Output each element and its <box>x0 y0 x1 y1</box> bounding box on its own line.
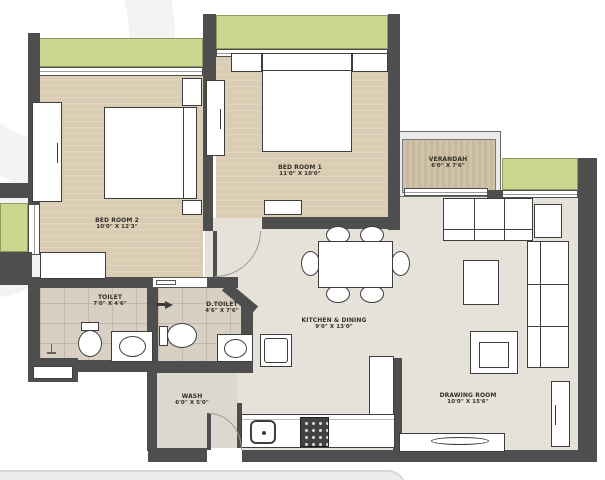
sliding-door <box>152 277 208 288</box>
shelf-icon <box>352 53 388 72</box>
entry-opening <box>207 448 242 464</box>
bench-icon <box>264 200 302 215</box>
tv-console-icon <box>551 381 570 447</box>
room-label-drawing: DRAWING ROOM 10'0" X 15'6" <box>440 392 497 406</box>
tall-unit-icon <box>369 356 394 416</box>
room-name: TOILET <box>93 294 127 301</box>
bedroom2-side-window <box>28 198 40 255</box>
room-dims: 6'0" X 5'0" <box>175 400 209 407</box>
verandah-sliding-window <box>404 188 488 196</box>
room-label-bedroom1: BED ROOM 1 11'0" X 10'0" <box>278 164 322 178</box>
room-label-dtoilet: D.TOILET 4'6" X 7'6" <box>205 301 239 315</box>
floor-plan: BED ROOM 2 10'0" X 12'3" BED ROOM 1 11'0… <box>0 0 605 480</box>
wall-post-mid <box>203 14 216 83</box>
wardrobe-icon <box>206 80 225 156</box>
washing-machine-icon <box>260 334 292 367</box>
wardrobe-icon <box>32 102 62 202</box>
living-window <box>502 190 578 198</box>
wall-right <box>578 158 597 462</box>
dining-chair-icon <box>391 251 410 276</box>
shelf-icon <box>231 53 262 72</box>
room-label-wash: WASH 6'0" X 5'0" <box>175 393 209 407</box>
bedroom2-window <box>39 67 203 76</box>
living-balcony-green <box>502 158 578 190</box>
room-label-bedroom2: BED ROOM 2 10'0" X 12'3" <box>95 217 139 231</box>
wall-bed1-right <box>388 83 400 230</box>
room-name: BED ROOM 2 <box>95 217 139 224</box>
wall-wash-left <box>147 362 157 451</box>
room-name: BED ROOM 1 <box>278 164 322 171</box>
side-table-icon <box>534 204 562 238</box>
wc-icon <box>159 321 201 351</box>
kitchen-sink-icon <box>250 420 276 444</box>
washbasin-icon <box>111 331 153 362</box>
wall-post-bed1-right <box>388 14 400 83</box>
hob-icon <box>300 417 329 447</box>
washbasin-icon <box>217 334 253 362</box>
wall-ledge-a <box>0 183 34 198</box>
bedroom1-balcony-green <box>216 15 388 49</box>
wc-icon <box>76 322 104 358</box>
dining-table-icon <box>318 241 393 288</box>
tv-icon <box>431 437 489 445</box>
room-dims: 10'0" X 12'3" <box>95 224 139 231</box>
room-name: D.TOILET <box>205 301 239 308</box>
room-dims: 4'6" X 7'6" <box>205 308 239 315</box>
room-dims: 10'0" X 15'6" <box>440 399 497 406</box>
room-name: DRAWING ROOM <box>440 392 497 399</box>
duct-box <box>33 366 73 379</box>
sofa-icon <box>527 241 569 368</box>
nightstand-icon <box>182 200 202 215</box>
room-dims: 9'0" X 13'0" <box>302 324 367 331</box>
room-name: WASH <box>175 393 209 400</box>
coffee-table-icon <box>463 260 499 305</box>
room-dims: 6'0" X 7'6" <box>429 163 467 170</box>
bottom-card-edge <box>0 470 406 480</box>
bedroom2-balcony-green <box>39 38 203 67</box>
dresser-icon <box>40 252 106 279</box>
wall-toilet-left <box>28 283 40 363</box>
nightstand-icon <box>182 78 202 106</box>
armchair-icon <box>470 331 518 374</box>
room-dims: 11'0" X 10'0" <box>278 171 322 178</box>
room-label-toilet: TOILET 7'0" X 4'6" <box>93 294 127 308</box>
bed-icon <box>262 53 352 152</box>
shower-icon <box>156 300 174 310</box>
room-dims: 7'0" X 4'6" <box>93 301 127 308</box>
wall-dtoilet-bottom <box>157 361 253 373</box>
bed-icon <box>104 107 197 199</box>
room-label-kitchen: KITCHEN & DINING 9'0" X 13'0" <box>302 317 367 331</box>
floor-drain-icon <box>47 344 56 354</box>
room-name: KITCHEN & DINING <box>302 317 367 324</box>
wall-wash-bottom <box>148 448 208 462</box>
side-planter-green <box>0 203 28 252</box>
room-name: VERANDAH <box>429 156 467 163</box>
sofa-icon <box>443 198 533 241</box>
room-label-verandah: VERANDAH 6'0" X 7'6" <box>429 156 467 170</box>
